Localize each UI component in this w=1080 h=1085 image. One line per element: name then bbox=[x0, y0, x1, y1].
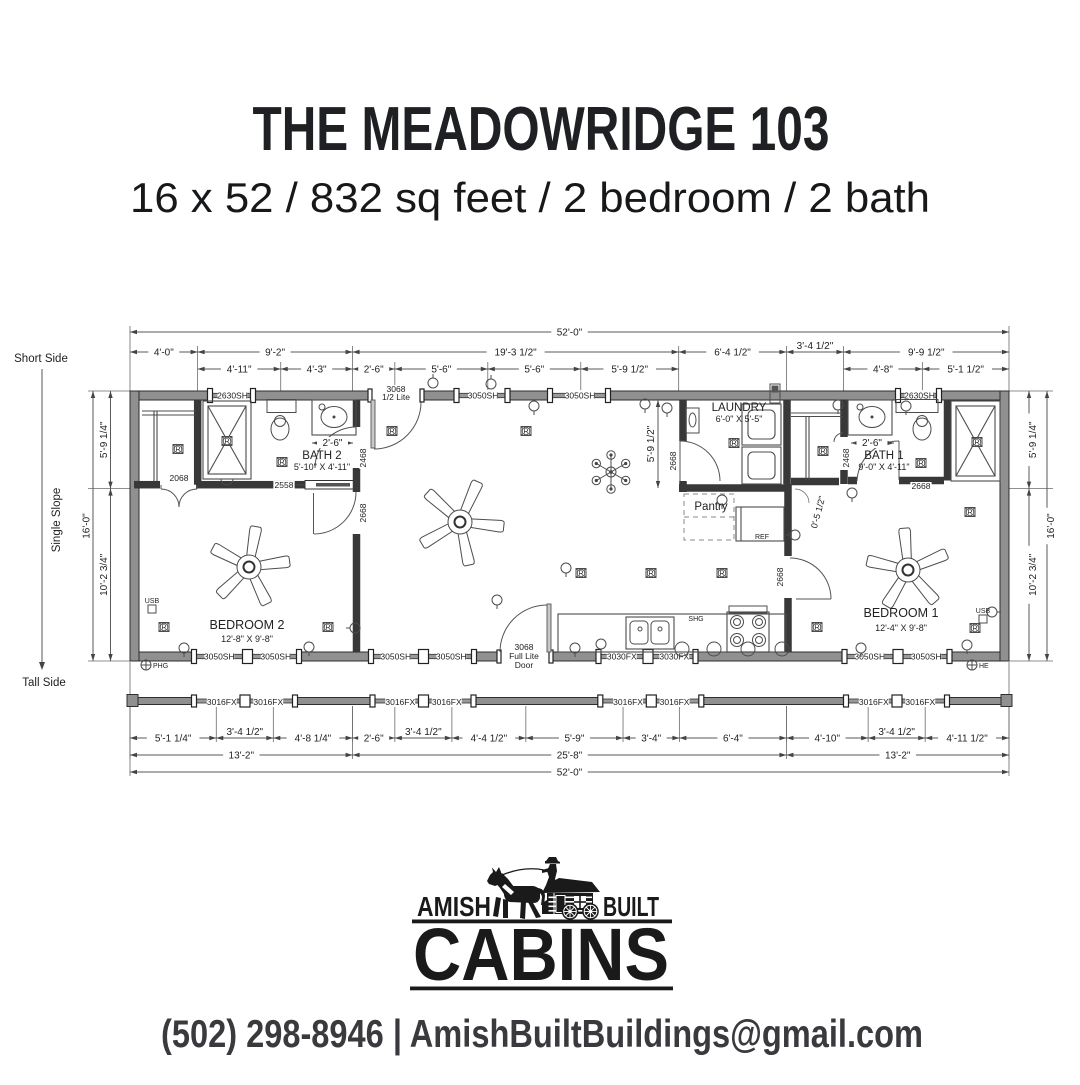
svg-text:R: R bbox=[974, 440, 979, 447]
svg-text:5'-6": 5'-6" bbox=[524, 365, 544, 376]
svg-text:3'-4": 3'-4" bbox=[641, 734, 661, 745]
svg-text:3016FX: 3016FX bbox=[253, 697, 283, 707]
svg-text:PHG: PHG bbox=[153, 663, 168, 670]
svg-text:6'-0" X 5'-5": 6'-0" X 5'-5" bbox=[716, 414, 763, 424]
svg-text:3016FX: 3016FX bbox=[613, 697, 643, 707]
svg-text:R: R bbox=[175, 447, 180, 454]
svg-text:3'-4 1/2": 3'-4 1/2" bbox=[878, 727, 915, 738]
svg-text:3016FX: 3016FX bbox=[859, 697, 889, 707]
svg-text:52'-0": 52'-0" bbox=[557, 768, 583, 779]
svg-text:BATH 1: BATH 1 bbox=[864, 450, 903, 462]
svg-text:2'-6": 2'-6" bbox=[323, 438, 343, 449]
svg-text:4'-0": 4'-0" bbox=[154, 348, 174, 359]
svg-text:2'-6": 2'-6" bbox=[364, 365, 384, 376]
svg-text:3016FX: 3016FX bbox=[385, 697, 415, 707]
svg-text:R: R bbox=[820, 449, 825, 456]
svg-text:5'-9 1/2": 5'-9 1/2" bbox=[611, 365, 648, 376]
svg-text:R: R bbox=[224, 439, 229, 446]
svg-text:4'-10": 4'-10" bbox=[815, 734, 841, 745]
svg-text:USB: USB bbox=[976, 608, 991, 615]
svg-text:2668: 2668 bbox=[775, 567, 785, 586]
svg-text:3016FX: 3016FX bbox=[660, 697, 690, 707]
svg-text:5'-1 1/2": 5'-1 1/2" bbox=[947, 365, 984, 376]
svg-text:16 x 52 / 832 sq feet / 2 bedr: 16 x 52 / 832 sq feet / 2 bedroom / 2 ba… bbox=[130, 174, 930, 221]
svg-text:12'-8" X 9'-8": 12'-8" X 9'-8" bbox=[221, 634, 273, 644]
svg-text:9'-9 1/2": 9'-9 1/2" bbox=[908, 348, 945, 359]
svg-text:R: R bbox=[578, 571, 583, 578]
svg-text:3030FX: 3030FX bbox=[659, 652, 689, 662]
svg-text:9'-2": 9'-2" bbox=[265, 348, 285, 359]
svg-text:3050SH: 3050SH bbox=[911, 652, 942, 662]
svg-text:R: R bbox=[972, 626, 977, 633]
svg-text:19'-3 1/2": 19'-3 1/2" bbox=[495, 348, 538, 359]
svg-text:R: R bbox=[731, 441, 736, 448]
svg-text:3050SH: 3050SH bbox=[468, 391, 499, 401]
svg-text:3016FX: 3016FX bbox=[432, 697, 462, 707]
svg-text:5'-9": 5'-9" bbox=[564, 734, 584, 745]
svg-text:4'-4 1/2": 4'-4 1/2" bbox=[471, 734, 508, 745]
svg-text:5'-1 1/4": 5'-1 1/4" bbox=[155, 734, 192, 745]
svg-text:HE: HE bbox=[979, 663, 989, 670]
svg-text:10'-2 3/4": 10'-2 3/4" bbox=[99, 553, 110, 596]
svg-text:LAUNDRY: LAUNDRY bbox=[712, 402, 767, 414]
svg-text:3050SH: 3050SH bbox=[204, 652, 235, 662]
svg-text:CABINS: CABINS bbox=[413, 913, 669, 996]
svg-text:R: R bbox=[523, 429, 528, 436]
svg-text:3030FX: 3030FX bbox=[607, 652, 637, 662]
svg-text:25'-8": 25'-8" bbox=[557, 751, 583, 762]
svg-text:BEDROOM 2: BEDROOM 2 bbox=[209, 618, 284, 632]
svg-text:6'-4": 6'-4" bbox=[723, 734, 743, 745]
svg-text:Single Slope: Single Slope bbox=[51, 488, 63, 553]
svg-text:9'-0" X 4'-11": 9'-0" X 4'-11" bbox=[858, 462, 909, 472]
svg-text:R: R bbox=[325, 625, 330, 632]
svg-text:3'-4 1/2": 3'-4 1/2" bbox=[405, 727, 442, 738]
svg-text:4'-11 1/2": 4'-11 1/2" bbox=[946, 734, 988, 745]
svg-text:3'-4 1/2": 3'-4 1/2" bbox=[227, 727, 264, 738]
svg-text:2'-6": 2'-6" bbox=[862, 438, 882, 449]
svg-text:12'-4" X 9'-8": 12'-4" X 9'-8" bbox=[875, 623, 927, 633]
svg-text:R: R bbox=[814, 625, 819, 632]
svg-text:1/2 Lite: 1/2 Lite bbox=[382, 392, 410, 402]
svg-text:5'-10" X 4'-11": 5'-10" X 4'-11" bbox=[294, 462, 350, 472]
svg-text:3050SH: 3050SH bbox=[436, 652, 467, 662]
svg-text:R: R bbox=[389, 429, 394, 436]
svg-text:5'-9 1/4": 5'-9 1/4" bbox=[1028, 421, 1039, 458]
svg-text:Tall Side: Tall Side bbox=[22, 677, 65, 689]
svg-text:2'-6": 2'-6" bbox=[364, 734, 384, 745]
svg-text:BEDROOM 1: BEDROOM 1 bbox=[863, 606, 938, 620]
svg-text:R: R bbox=[279, 460, 284, 467]
svg-text:USB: USB bbox=[145, 598, 160, 605]
svg-text:2068: 2068 bbox=[170, 473, 189, 483]
svg-text:Pantry: Pantry bbox=[694, 501, 727, 513]
svg-text:4'-3": 4'-3" bbox=[307, 365, 327, 376]
svg-text:R: R bbox=[719, 571, 724, 578]
svg-text:2630SH: 2630SH bbox=[217, 391, 248, 401]
svg-text:R: R bbox=[918, 461, 923, 468]
svg-text:3050SH: 3050SH bbox=[380, 652, 411, 662]
svg-text:Door: Door bbox=[515, 660, 534, 670]
svg-text:6'-4 1/2": 6'-4 1/2" bbox=[714, 348, 751, 359]
svg-text:3016FX: 3016FX bbox=[207, 697, 237, 707]
svg-text:2468: 2468 bbox=[358, 448, 368, 467]
svg-text:THE MEADOWRIDGE 103: THE MEADOWRIDGE 103 bbox=[253, 95, 830, 164]
svg-text:16'-0": 16'-0" bbox=[82, 513, 93, 539]
svg-text:4'-11": 4'-11" bbox=[227, 365, 252, 376]
svg-text:3016FX: 3016FX bbox=[905, 697, 935, 707]
svg-text:2668: 2668 bbox=[912, 481, 931, 491]
svg-text:13'-2": 13'-2" bbox=[229, 751, 255, 762]
svg-text:16'-0": 16'-0" bbox=[1046, 513, 1057, 539]
svg-text:3050SH: 3050SH bbox=[260, 652, 291, 662]
svg-text:R: R bbox=[967, 510, 972, 517]
svg-text:Short Side: Short Side bbox=[14, 353, 68, 365]
svg-text:52'-0": 52'-0" bbox=[557, 328, 583, 339]
svg-text:5'-6": 5'-6" bbox=[431, 365, 451, 376]
svg-text:4'-8 1/4": 4'-8 1/4" bbox=[295, 734, 332, 745]
svg-text:4'-8": 4'-8" bbox=[873, 365, 893, 376]
svg-text:REF: REF bbox=[755, 534, 769, 541]
svg-text:5'-9 1/2": 5'-9 1/2" bbox=[646, 425, 657, 462]
svg-text:R: R bbox=[161, 625, 166, 632]
svg-text:10'-2 3/4": 10'-2 3/4" bbox=[1028, 553, 1039, 596]
svg-text:2468: 2468 bbox=[841, 448, 851, 467]
svg-text:3'-4 1/2": 3'-4 1/2" bbox=[797, 341, 834, 352]
svg-text:13'-2": 13'-2" bbox=[885, 751, 911, 762]
svg-text:3050SH: 3050SH bbox=[565, 391, 596, 401]
svg-text:2668: 2668 bbox=[358, 503, 368, 522]
svg-text:SHG: SHG bbox=[688, 616, 703, 623]
svg-text:R: R bbox=[648, 571, 653, 578]
svg-text:2558: 2558 bbox=[275, 480, 294, 490]
svg-text:BATH 2: BATH 2 bbox=[302, 450, 341, 462]
svg-text:5'-9 1/4": 5'-9 1/4" bbox=[99, 421, 110, 458]
svg-text:(502) 298-8946 | AmishBuiltBui: (502) 298-8946 | AmishBuiltBuildings@gma… bbox=[161, 1013, 923, 1056]
svg-text:2668: 2668 bbox=[668, 451, 678, 470]
